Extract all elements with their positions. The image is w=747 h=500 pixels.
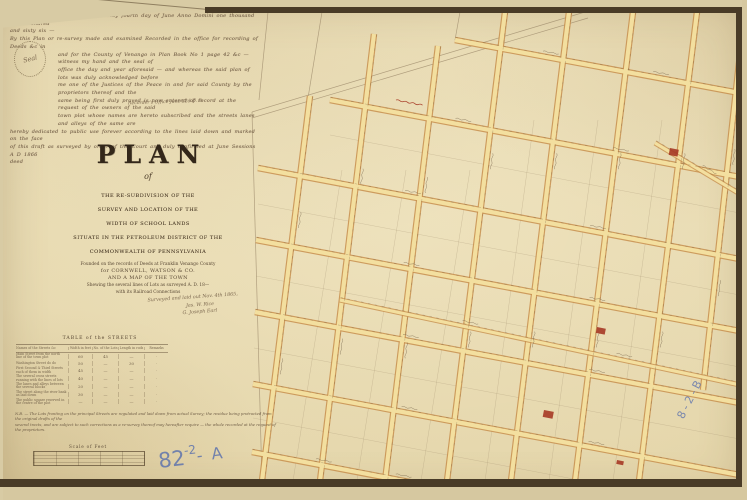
scale-bar [33,451,145,466]
paper-edge-left [0,0,3,500]
title-caps-lines: THE RE-SUBDIVISION OF THESURVEY AND LOCA… [52,189,244,259]
red-building-block [616,460,624,465]
red-building-block [596,327,606,335]
seal-label: Seal [22,53,38,64]
red-building-block [543,410,554,419]
title-block: PLAN of THE RE-SUBDIVISION OF THESURVEY … [52,140,244,296]
title-of-flourish: of [52,172,244,181]
recorder-seal: Seal [14,41,46,77]
scale-bar-label: Scale of Feet [33,444,143,449]
table-row: The street along the river bank as laid … [16,390,168,398]
table-row: The public square reserved in the centre… [16,398,168,406]
streets-table-body: Main Street from the north line of the t… [16,353,168,406]
paper-edge-right [742,0,747,500]
map-sheet: Be it remembered that on the twenty four… [0,0,747,500]
neatline-top [205,7,747,13]
streets-table: Names of the Streets &cWidth in feetNo. … [16,344,168,406]
title-sub-lines: Founded on the records of Deeds at Frank… [52,261,244,296]
streets-table-title: TABLE of the STREETS [60,336,140,341]
paper-edge-bottom [0,487,747,500]
neatline-bottom [0,479,747,487]
footnote: N.B. — The Lots fronting on the principa… [15,411,277,433]
page-title: PLAN [52,140,244,169]
table-row: Main Street from the north line of the t… [16,353,168,361]
